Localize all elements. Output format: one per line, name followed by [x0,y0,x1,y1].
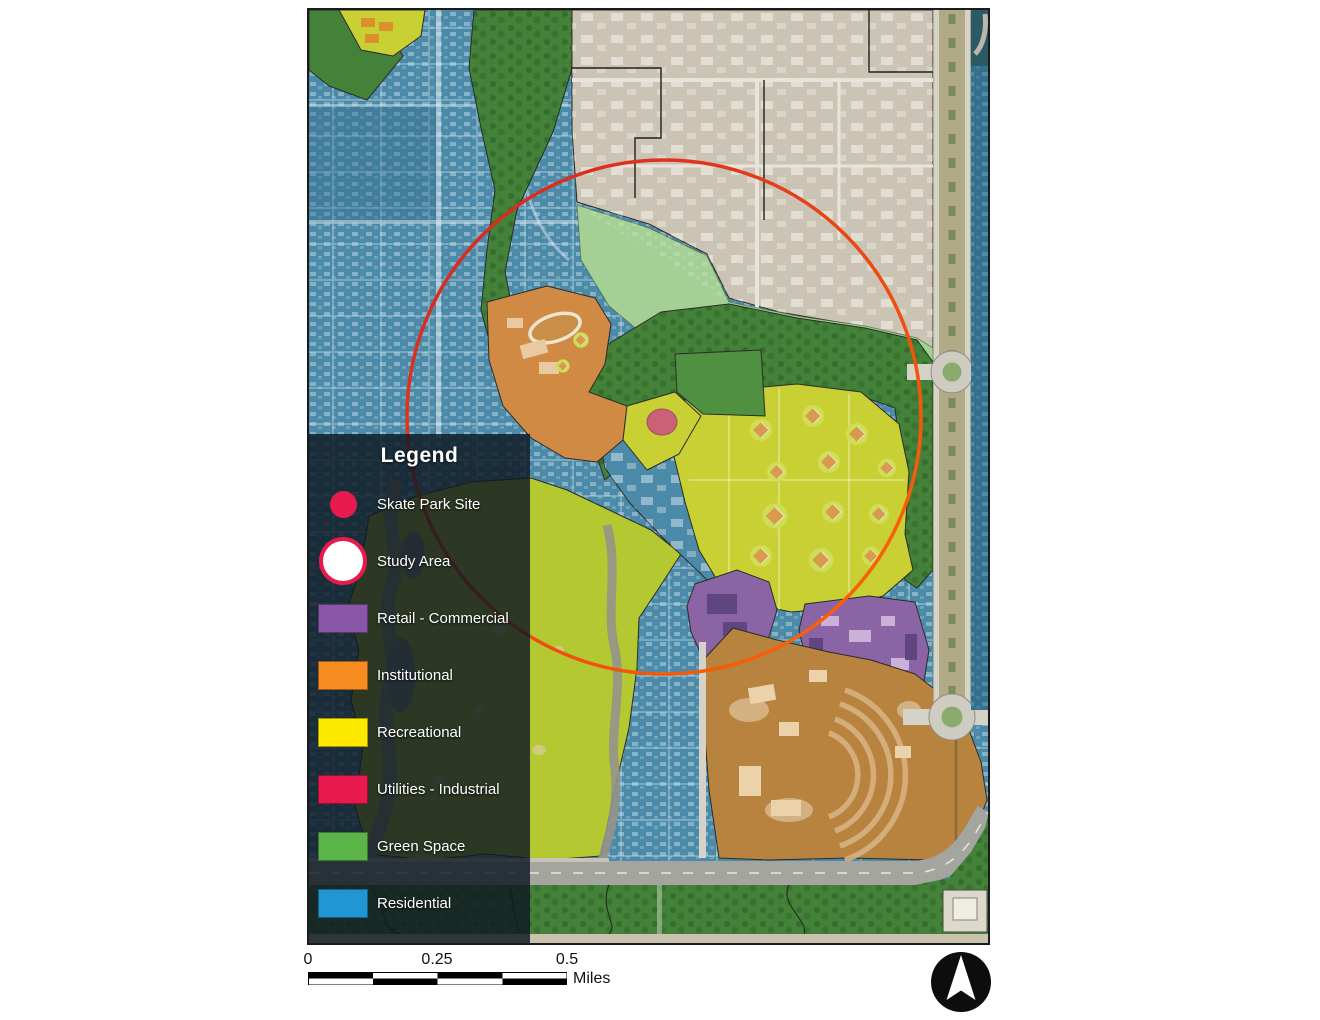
map-frame: Legend Skate Park Site Study Area Retail… [307,8,990,945]
green-space-swatch-icon [318,832,368,861]
legend-item-study-area: Study Area [309,533,530,589]
legend-item-label: Recreational [377,724,461,741]
legend-item-residential: Residential [309,875,530,931]
scale-tick-quarter: 0.25 [421,951,452,969]
legend-item-label: Retail - Commercial [377,610,509,627]
legend-item-label: Green Space [377,838,465,855]
roundabout-south [929,694,975,740]
scale-tick-0: 0 [304,951,313,969]
school-diamond-2 [556,359,569,372]
legend-item-utilities-industrial: Utilities - Industrial [309,761,530,817]
residential-swatch-icon [318,889,368,918]
legend-item-label: Utilities - Industrial [377,781,500,798]
campus-west-road [699,642,706,858]
legend-item-label: Skate Park Site [377,496,480,513]
skate-park-site-marker [647,409,677,435]
school-diamond-1 [573,332,588,347]
scale-unit-label: Miles [573,970,610,988]
legend-title: Legend [309,444,530,468]
scale-tick-half: 0.5 [556,951,578,969]
legend-item-label: Study Area [377,553,450,570]
roundabout-north [931,351,973,393]
institutional-swatch-icon [318,661,368,690]
scale-bar [308,972,567,985]
recreational-swatch-icon [318,718,368,747]
skate-park-swatch-icon [330,491,357,518]
green-south-road [657,885,662,934]
legend-item-institutional: Institutional [309,647,530,703]
utilities-swatch-icon [318,775,368,804]
southeast-building-block [943,890,987,932]
legend-item-skate-park-site: Skate Park Site [309,476,530,532]
legend-item-green-space: Green Space [309,818,530,874]
retail-swatch-icon [318,604,368,633]
study-area-swatch-icon [319,537,367,585]
legend-item-label: Residential [377,895,451,912]
legend-item-recreational: Recreational [309,704,530,760]
legend-panel: Legend Skate Park Site Study Area Retail… [309,434,530,943]
legend-item-retail-commercial: Retail - Commercial [309,590,530,646]
residential-dark-patch [309,106,437,224]
legend-item-label: Institutional [377,667,453,684]
east-strip-texture [971,10,988,710]
north-arrow-icon [929,950,993,1014]
page: Legend Skate Park Site Study Area Retail… [0,0,1320,1020]
